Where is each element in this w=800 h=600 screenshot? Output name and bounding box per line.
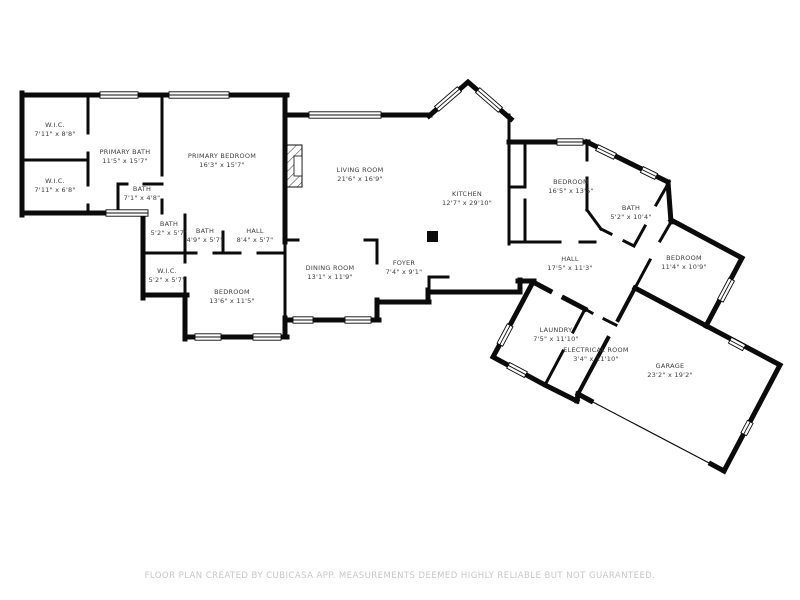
pillar [427,231,438,242]
windows [100,87,753,436]
garage-left-wall [578,288,635,394]
fireplace [287,145,302,187]
floor-plan-page: W.I.C.7'11" x 8'8" W.I.C.7'11" x 6'8" PR… [0,0,800,600]
floor-plan-drawing [0,0,800,600]
exterior-walls [22,82,780,471]
footer-disclaimer: FLOOR PLAN CREATED BY CUBICASA APP. MEAS… [145,571,656,581]
garage-door [591,401,711,464]
